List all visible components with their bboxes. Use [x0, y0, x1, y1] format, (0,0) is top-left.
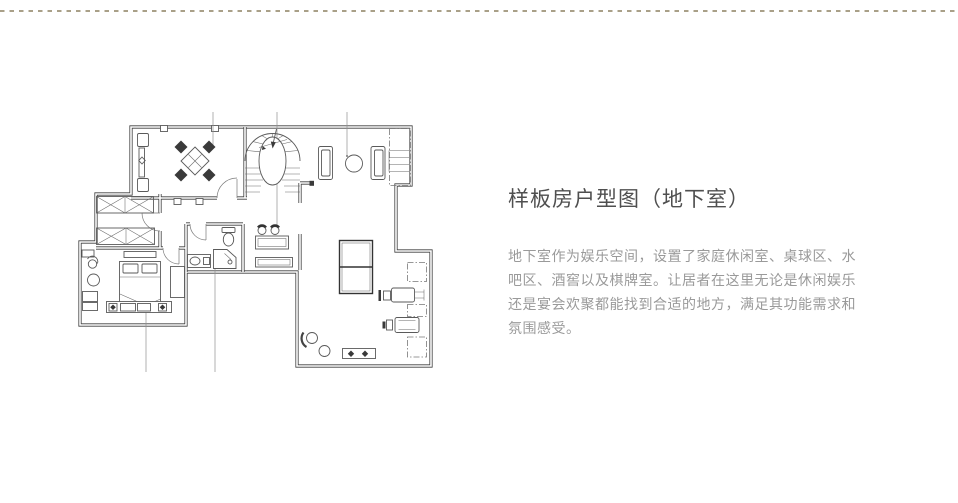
page-description: 地下室作为娱乐空间，设置了家庭休闲室、桌球区、水吧区、酒窖以及棋牌室。让居者在这…	[508, 244, 856, 340]
floor-plan	[65, 108, 455, 383]
staircase	[245, 129, 300, 192]
bench	[343, 349, 376, 359]
leisure-room-furniture	[319, 129, 411, 186]
vanity	[188, 255, 211, 268]
card-room-furniture	[138, 134, 216, 192]
bar-counter	[256, 236, 289, 249]
wardrobe	[171, 267, 185, 298]
bathroom-fixtures	[188, 228, 237, 269]
bed	[120, 262, 161, 306]
bench-pad	[138, 179, 149, 192]
text-column: 样板房户型图（地下室） 地下室作为娱乐空间，设置了家庭休闲室、桌球区、水吧区、酒…	[508, 186, 860, 340]
hall-bench	[256, 258, 293, 268]
bar-area	[256, 226, 293, 268]
round-table	[346, 155, 363, 172]
toilet	[223, 233, 233, 246]
top-dashed-divider	[0, 10, 958, 12]
exercise-equipment	[379, 288, 425, 333]
bedroom-furniture	[82, 250, 185, 313]
side-table	[319, 346, 330, 357]
shower	[214, 250, 237, 269]
storage-shelving	[97, 197, 155, 245]
basement-floor-plan-drawing	[65, 108, 455, 383]
page-title: 样板房户型图（地下室）	[508, 186, 860, 214]
bench-pad	[138, 134, 149, 147]
toilet-tank	[222, 228, 235, 233]
lounge-chair	[302, 333, 330, 357]
stool	[88, 274, 100, 286]
billiard-room	[302, 241, 427, 359]
